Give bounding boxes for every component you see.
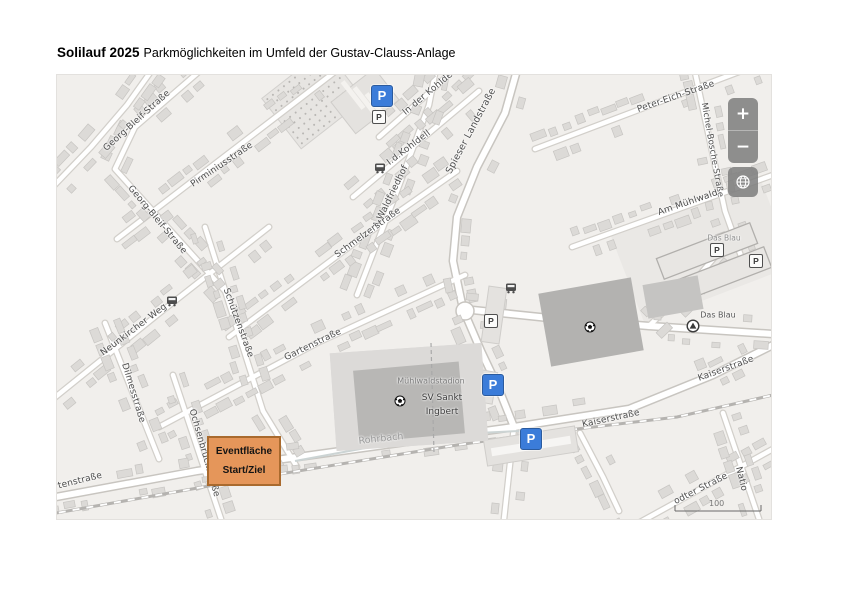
map-tiles: [57, 75, 771, 519]
parking-icon-small-kohldell: P: [372, 110, 386, 124]
event-area-line1: Eventfläche: [216, 446, 272, 457]
parking-icon-stadium: P: [482, 374, 504, 396]
zoom-out-button[interactable]: −: [728, 131, 758, 163]
parking-icon-kohldell: P: [371, 85, 393, 107]
parking-icon-small-das-blau-2: P: [749, 254, 763, 268]
map-zoom-controls: + −: [728, 98, 758, 197]
event-area-line2: Start/Ziel: [223, 465, 266, 476]
page-title: Solilauf 2025Parkmöglichkeiten im Umfeld…: [57, 44, 455, 62]
map-canvas[interactable]: Georg-Bleif-Straße Georg-Bleif-Straße Pi…: [57, 75, 771, 519]
title-event-name: Solilauf 2025: [57, 45, 140, 60]
scale-bar-label: 100: [709, 499, 724, 508]
page: Solilauf 2025Parkmöglichkeiten im Umfeld…: [0, 0, 841, 595]
title-subtitle: Parkmöglichkeiten im Umfeld der Gustav-C…: [144, 46, 456, 60]
parking-icon-small-central: P: [484, 314, 498, 328]
locate-globe-button[interactable]: [728, 167, 758, 197]
zoom-in-button[interactable]: +: [728, 98, 758, 131]
globe-icon: [735, 174, 751, 190]
event-area-box: Eventfläche Start/Ziel: [207, 436, 281, 486]
parking-icon-kaiserstrasse: P: [520, 428, 542, 450]
parking-icon-small-das-blau-1: P: [710, 243, 724, 257]
